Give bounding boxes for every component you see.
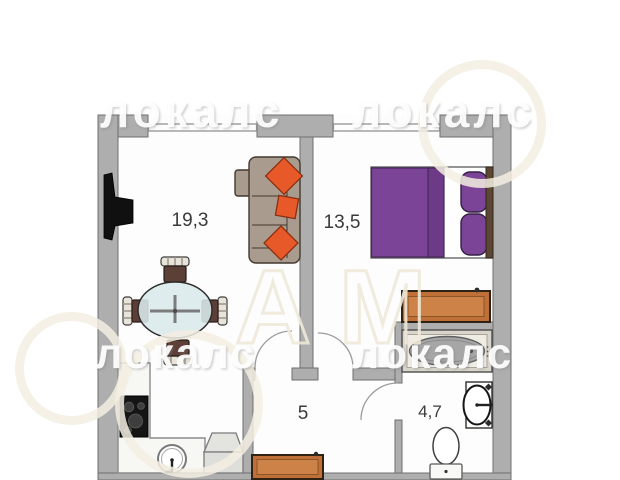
bathroom-area-label: 4,7 bbox=[418, 402, 442, 421]
bed-headboard bbox=[486, 167, 493, 258]
appliance-box bbox=[204, 433, 243, 473]
bed-blanket-fold bbox=[428, 168, 444, 257]
wall-left bbox=[98, 115, 118, 480]
floor-plan-drawing: 19,3 13,5 5 4,7 bbox=[0, 0, 620, 480]
wall-bath-left-lower bbox=[395, 420, 402, 473]
bed-pillow-icon bbox=[461, 172, 487, 212]
wall-bedroom-bath bbox=[402, 322, 493, 330]
wall-door-stub-center bbox=[292, 368, 318, 380]
kitchen-sink-icon bbox=[158, 445, 186, 473]
dining-chair-icon bbox=[161, 257, 189, 282]
wall-top-middle bbox=[257, 115, 333, 137]
floor-plan-image: 19,3 13,5 5 4,7 АМ локалс локалс локалс … bbox=[0, 0, 620, 480]
dining-chair-icon bbox=[164, 340, 192, 365]
bed-blanket bbox=[372, 168, 429, 257]
dresser bbox=[402, 288, 490, 322]
shoe-bench bbox=[252, 452, 323, 479]
living-room-area-label: 19,3 bbox=[172, 210, 209, 231]
bed-pillow-icon bbox=[461, 214, 487, 255]
throw-pillow-icon bbox=[275, 195, 298, 218]
wall-living-bedroom bbox=[300, 137, 313, 368]
toilet-icon bbox=[430, 428, 462, 480]
wash-basin-icon bbox=[464, 382, 494, 428]
bathtub-icon bbox=[402, 330, 492, 372]
hallway-area-label: 5 bbox=[298, 403, 309, 424]
stove-icon bbox=[120, 396, 148, 437]
wall-bath-left-upper bbox=[395, 322, 402, 383]
bedroom-area-label: 13,5 bbox=[324, 212, 361, 233]
wall-right bbox=[493, 115, 511, 480]
double-bed bbox=[371, 167, 493, 258]
